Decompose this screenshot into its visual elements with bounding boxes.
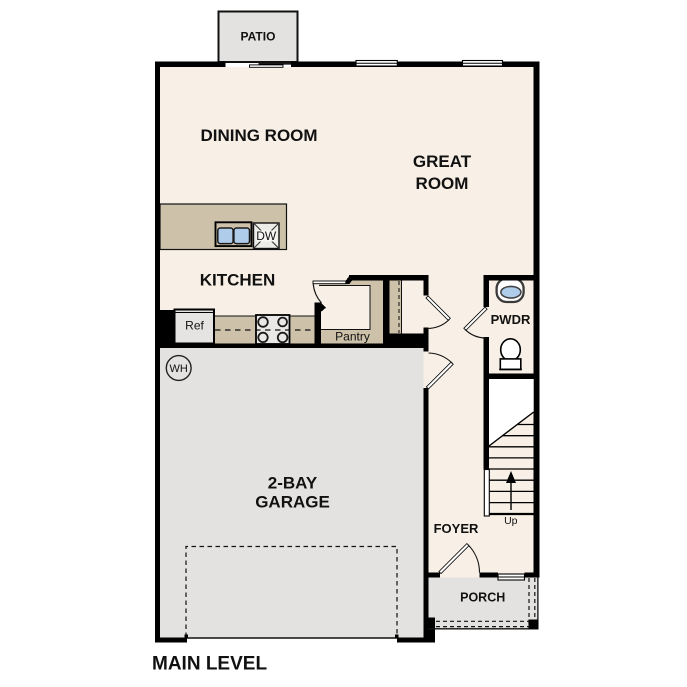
svg-text:Up: Up <box>504 515 518 527</box>
svg-text:MAIN LEVEL: MAIN LEVEL <box>152 654 267 675</box>
svg-text:DINING ROOM: DINING ROOM <box>200 126 317 145</box>
svg-text:FOYER: FOYER <box>434 521 479 536</box>
svg-text:GREAT: GREAT <box>413 152 472 171</box>
svg-text:PATIO: PATIO <box>241 30 276 44</box>
svg-text:2-BAY: 2-BAY <box>268 473 318 492</box>
svg-text:GARAGE: GARAGE <box>255 493 330 512</box>
svg-text:DW: DW <box>256 229 277 243</box>
svg-text:KITCHEN: KITCHEN <box>200 270 276 289</box>
svg-text:PORCH: PORCH <box>460 591 505 605</box>
svg-text:Pantry: Pantry <box>335 329 370 343</box>
svg-text:PWDR: PWDR <box>491 312 531 327</box>
svg-text:ROOM: ROOM <box>416 174 469 193</box>
svg-text:Ref: Ref <box>185 319 204 333</box>
svg-text:WH: WH <box>170 363 188 375</box>
